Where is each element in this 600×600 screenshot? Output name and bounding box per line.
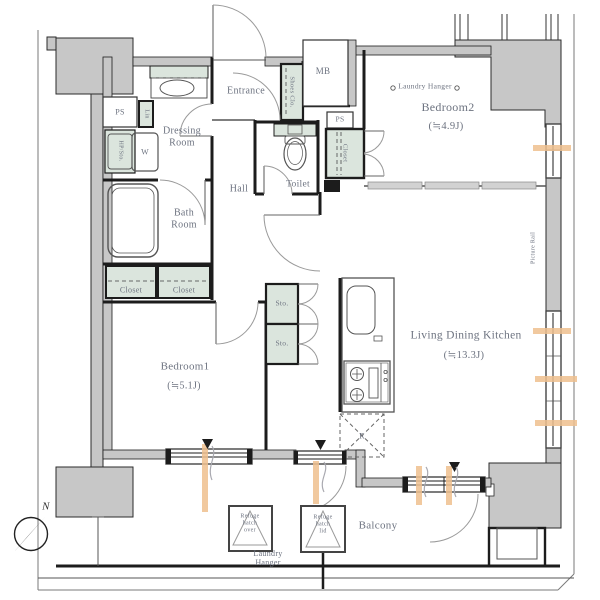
faucet [374, 336, 382, 341]
refuge-hatch-right-label: Refuge hatch lid [313, 515, 332, 536]
vanity-top [150, 66, 208, 78]
room-label-bedroom2: Bedroom2 [421, 101, 474, 115]
refuge-hatch-left-label: Refuge hatch over [240, 514, 259, 535]
room-label-closet-b: Closet [173, 285, 195, 294]
laundry-hanger-bedroom2: Laundry Hanger [398, 83, 452, 92]
refrigerator-label: R [359, 431, 365, 440]
corridor-balcony-door [294, 451, 346, 464]
room-size-ldk: (≒13.3J) [444, 350, 485, 362]
stove [344, 361, 390, 404]
room-label-dressing: Dressing Room [163, 126, 201, 149]
floor-plan-drawing [0, 0, 600, 600]
room-label-hall: Hall [230, 183, 248, 195]
laundry-hanger-balcony: Laundry Hanger [253, 549, 282, 567]
room-label-closet-a: Closet [120, 285, 142, 294]
room-label-ps-left: PS [115, 107, 125, 116]
sliding-partition [364, 182, 546, 189]
toilet-fixture [274, 124, 316, 170]
room-label-shoes-closet: Shoes Clo. [288, 76, 295, 107]
room-label-entrance: Entrance [227, 85, 265, 97]
room-size-bedroom1: (≒5.1J) [167, 380, 201, 392]
room-label-sto-1: Sto. [275, 300, 288, 309]
room-label-linen: Lin [143, 109, 150, 118]
room-label-bedroom1: Bedroom1 [161, 361, 210, 374]
kitchen-counter [342, 278, 394, 412]
room-label-bath: Bath Room [171, 208, 197, 231]
ldk-balcony-door [403, 477, 485, 492]
room-label-ps-right: PS [336, 116, 345, 125]
vanity-sink [151, 78, 207, 98]
bathtub [108, 184, 158, 257]
picture-rail-label: Picture Rail [531, 232, 538, 264]
room-label-sto-2: Sto. [275, 340, 288, 349]
room-label-toilet: Toilet [286, 180, 310, 191]
room-label-mb: MB [316, 66, 331, 76]
room-label-utility: HP/Sto. [117, 141, 124, 162]
bedroom1-window [166, 449, 252, 464]
compass-north-label: N [42, 501, 50, 514]
kitchen-sink [347, 286, 375, 334]
floor-plan: PS Lin HP/Sto. W Dressing Room Bath Room… [0, 0, 600, 600]
top-wall-ticks [455, 14, 558, 40]
room-label-washer: W [141, 147, 149, 156]
compass-icon [14, 517, 48, 552]
room-size-bedroom2: (≒4.9J) [428, 121, 463, 133]
room-label-balcony: Balcony [359, 520, 398, 533]
room-label-ldk: Living Dining Kitchen [410, 329, 521, 342]
room-label-closet-bedroom2: Closet [341, 144, 348, 162]
